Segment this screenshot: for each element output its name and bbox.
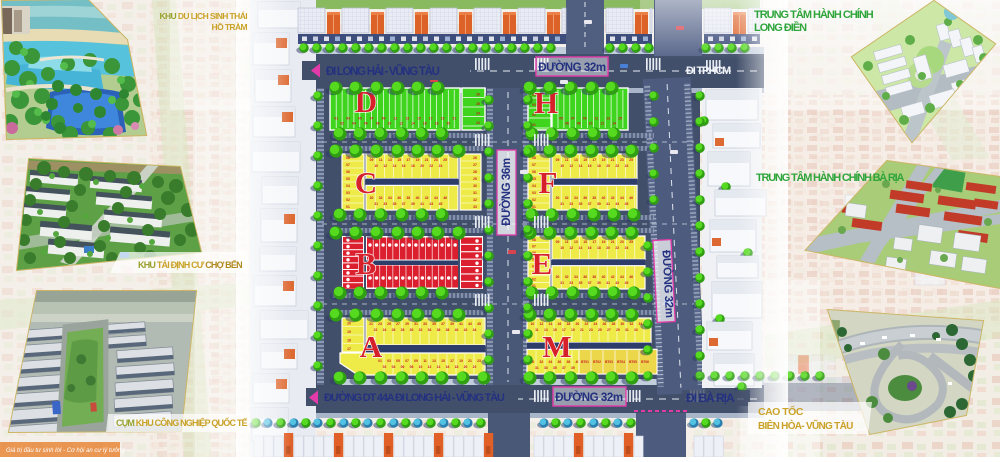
svg-text:15: 15	[583, 158, 587, 162]
svg-text:31: 31	[625, 328, 629, 332]
svg-text:21: 21	[468, 359, 472, 363]
svg-text:29: 29	[405, 322, 409, 326]
svg-text:21: 21	[611, 158, 615, 162]
svg-text:02: 02	[383, 365, 387, 369]
svg-text:37: 37	[588, 281, 592, 285]
svg-text:HỒ TRÀM: HỒ TRÀM	[212, 21, 248, 32]
svg-text:32: 32	[379, 196, 383, 200]
svg-text:16: 16	[402, 164, 406, 168]
svg-text:KHU DU LỊCH SINH THÁI: KHU DU LỊCH SINH THÁI	[159, 11, 247, 21]
svg-text:34: 34	[574, 275, 578, 279]
svg-text:16: 16	[558, 322, 562, 326]
svg-text:32: 32	[419, 328, 423, 332]
svg-text:Giá trị đầu tư sinh lời - Cơ h: Giá trị đầu tư sinh lời - Cơ hội an cư l…	[6, 447, 125, 454]
svg-text:06: 06	[565, 122, 569, 126]
svg-text:33: 33	[569, 281, 573, 285]
svg-text:35: 35	[579, 281, 583, 285]
svg-text:BT05: BT05	[629, 360, 637, 364]
svg-text:43: 43	[615, 202, 619, 206]
svg-text:42: 42	[611, 275, 615, 279]
svg-text:BT01: BT01	[581, 360, 589, 364]
svg-text:38: 38	[592, 275, 596, 279]
svg-text:25: 25	[443, 158, 447, 162]
svg-text:37: 37	[402, 202, 406, 206]
svg-text:F: F	[539, 165, 558, 200]
svg-text:08: 08	[376, 122, 380, 126]
svg-text:BT04: BT04	[617, 360, 625, 364]
svg-text:18: 18	[435, 122, 439, 126]
svg-text:21: 21	[369, 322, 373, 326]
svg-text:42: 42	[464, 328, 468, 332]
svg-text:33: 33	[544, 366, 548, 370]
svg-text:40: 40	[416, 196, 420, 200]
svg-text:39: 39	[597, 202, 601, 206]
svg-text:14: 14	[549, 322, 553, 326]
svg-text:BT06: BT06	[641, 360, 649, 364]
svg-text:22: 22	[473, 365, 477, 369]
svg-text:28: 28	[473, 170, 477, 174]
svg-text:15: 15	[618, 117, 622, 121]
svg-text:17: 17	[429, 117, 433, 121]
svg-text:21: 21	[425, 158, 429, 162]
svg-text:18: 18	[455, 365, 459, 369]
svg-text:18: 18	[597, 246, 601, 250]
svg-text:38: 38	[446, 328, 450, 332]
svg-text:11: 11	[394, 117, 398, 121]
svg-text:06: 06	[401, 365, 405, 369]
svg-text:08: 08	[410, 365, 414, 369]
svg-text:34: 34	[388, 196, 392, 200]
svg-text:36: 36	[583, 196, 587, 200]
svg-text:09: 09	[382, 117, 386, 121]
svg-text:20: 20	[447, 122, 451, 126]
svg-text:17: 17	[406, 158, 410, 162]
svg-text:16: 16	[588, 164, 592, 168]
svg-text:14: 14	[411, 122, 415, 126]
svg-text:09: 09	[414, 359, 418, 363]
svg-text:23: 23	[620, 158, 624, 162]
svg-text:09: 09	[370, 158, 374, 162]
svg-text:06: 06	[364, 122, 368, 126]
svg-text:45: 45	[625, 281, 629, 285]
svg-text:31: 31	[560, 202, 564, 206]
svg-text:27: 27	[396, 322, 400, 326]
svg-text:19: 19	[459, 359, 463, 363]
svg-text:36: 36	[397, 196, 401, 200]
svg-text:29: 29	[616, 328, 620, 332]
svg-text:CỤM KHU CÔNG NGHIỆP QUỐC TẾ: CỤM KHU CÔNG NGHIỆP QUỐC TẾ	[116, 417, 248, 428]
svg-text:33: 33	[423, 322, 427, 326]
svg-text:TRUNG TÂM HÀNH CHÍNH: TRUNG TÂM HÀNH CHÍNH	[754, 8, 874, 21]
svg-text:11: 11	[565, 240, 569, 244]
svg-text:41: 41	[459, 322, 463, 326]
svg-text:23: 23	[434, 158, 438, 162]
svg-text:19: 19	[441, 117, 445, 121]
svg-text:16: 16	[446, 365, 450, 369]
svg-text:25: 25	[629, 158, 633, 162]
svg-text:12: 12	[600, 122, 604, 126]
svg-text:32: 32	[565, 275, 569, 279]
svg-text:27: 27	[607, 328, 611, 332]
svg-text:BIÊN HÒA- VŨNG TÀU: BIÊN HÒA- VŨNG TÀU	[758, 419, 853, 432]
svg-text:31: 31	[473, 191, 477, 195]
svg-text:24: 24	[594, 322, 598, 326]
svg-text:33: 33	[383, 202, 387, 206]
svg-text:09: 09	[556, 158, 560, 162]
svg-text:38: 38	[406, 196, 410, 200]
svg-text:29: 29	[473, 177, 477, 181]
svg-text:06: 06	[346, 170, 350, 174]
svg-text:07: 07	[532, 163, 536, 167]
svg-text:23: 23	[589, 328, 593, 332]
svg-text:05: 05	[346, 177, 350, 181]
svg-text:22: 22	[615, 246, 619, 250]
svg-text:22: 22	[429, 164, 433, 168]
svg-text:33: 33	[569, 202, 573, 206]
svg-text:28: 28	[401, 328, 405, 332]
svg-text:15: 15	[417, 117, 421, 121]
svg-text:27: 27	[473, 163, 477, 167]
svg-text:04: 04	[392, 365, 396, 369]
svg-text:25: 25	[387, 322, 391, 326]
svg-text:08: 08	[577, 122, 581, 126]
svg-text:BT02: BT02	[593, 360, 601, 364]
svg-text:ĐI LONG HẢI - VŨNG TÀU: ĐI LONG HẢI - VŨNG TÀU	[326, 65, 440, 78]
svg-text:40: 40	[602, 196, 606, 200]
svg-text:22: 22	[585, 322, 589, 326]
svg-text:32: 32	[565, 196, 569, 200]
svg-text:19: 19	[416, 158, 420, 162]
svg-text:19: 19	[602, 158, 606, 162]
svg-text:BT03: BT03	[605, 360, 613, 364]
svg-text:34: 34	[428, 328, 432, 332]
svg-text:41: 41	[606, 281, 610, 285]
svg-text:11: 11	[379, 158, 383, 162]
svg-text:31: 31	[535, 366, 539, 370]
svg-text:35: 35	[432, 322, 436, 326]
svg-text:10: 10	[560, 164, 564, 168]
svg-text:07: 07	[405, 359, 409, 363]
svg-text:13: 13	[405, 117, 409, 121]
svg-text:01: 01	[532, 205, 536, 209]
svg-text:25: 25	[629, 240, 633, 244]
svg-text:12: 12	[540, 322, 544, 326]
svg-text:14: 14	[579, 164, 583, 168]
svg-text:43: 43	[615, 281, 619, 285]
svg-text:07: 07	[571, 117, 575, 121]
svg-text:12: 12	[428, 365, 432, 369]
svg-text:35: 35	[579, 202, 583, 206]
svg-text:44: 44	[473, 328, 477, 332]
svg-text:ĐƯỜNG 36m: ĐƯỜNG 36m	[500, 158, 513, 226]
svg-text:20: 20	[420, 164, 424, 168]
svg-text:02: 02	[346, 198, 350, 202]
svg-text:39: 39	[450, 322, 454, 326]
svg-text:KHU TÁI ĐỊNH CƯ CHỢ BẾN: KHU TÁI ĐỊNH CƯ CHỢ BẾN	[138, 260, 242, 270]
svg-text:03: 03	[532, 191, 536, 195]
svg-text:26: 26	[392, 328, 396, 332]
svg-text:41: 41	[420, 202, 424, 206]
svg-text:43: 43	[468, 322, 472, 326]
svg-text:ĐƯỜNG DT 44A ĐI LONG HẢI - VŨ: ĐƯỜNG DT 44A ĐI LONG HẢI - VŨNG TÀU	[324, 391, 505, 404]
svg-text:42: 42	[611, 196, 615, 200]
svg-text:21: 21	[452, 117, 456, 121]
svg-text:45: 45	[439, 202, 443, 206]
svg-text:03: 03	[387, 359, 391, 363]
svg-text:42: 42	[425, 196, 429, 200]
svg-text:ĐƯỜNG 32m: ĐƯỜNG 32m	[555, 391, 623, 404]
svg-text:33: 33	[473, 205, 477, 209]
svg-text:32: 32	[473, 198, 477, 202]
svg-text:30: 30	[621, 322, 625, 326]
svg-text:21: 21	[580, 328, 584, 332]
svg-text:07: 07	[346, 163, 350, 167]
svg-text:14: 14	[612, 122, 616, 126]
svg-text:34: 34	[574, 196, 578, 200]
svg-text:18: 18	[567, 322, 571, 326]
svg-text:10: 10	[388, 122, 392, 126]
svg-text:16: 16	[588, 246, 592, 250]
svg-text:44: 44	[434, 196, 438, 200]
svg-text:14: 14	[579, 246, 583, 250]
svg-text:46: 46	[443, 196, 447, 200]
svg-text:18: 18	[411, 164, 415, 168]
svg-text:25: 25	[598, 328, 602, 332]
svg-text:18: 18	[597, 164, 601, 168]
svg-text:36: 36	[437, 328, 441, 332]
svg-text:ĐI TP.HCM: ĐI TP.HCM	[686, 65, 731, 77]
svg-text:32: 32	[630, 322, 634, 326]
svg-text:06: 06	[532, 170, 536, 174]
svg-text:26: 26	[476, 93, 480, 97]
svg-text:04: 04	[346, 184, 350, 188]
svg-text:24: 24	[439, 164, 443, 168]
svg-text:13: 13	[432, 359, 436, 363]
svg-text:37: 37	[588, 202, 592, 206]
svg-text:28: 28	[612, 322, 616, 326]
svg-text:13: 13	[574, 158, 578, 162]
svg-text:20: 20	[576, 322, 580, 326]
svg-text:24: 24	[383, 328, 387, 332]
svg-text:19: 19	[602, 240, 606, 244]
svg-text:26: 26	[473, 156, 477, 160]
svg-text:36: 36	[583, 275, 587, 279]
svg-text:04: 04	[352, 122, 356, 126]
svg-text:30: 30	[473, 184, 477, 188]
svg-text:26: 26	[603, 322, 607, 326]
svg-text:22: 22	[615, 164, 619, 168]
svg-text:10: 10	[419, 365, 423, 369]
svg-text:35: 35	[393, 202, 397, 206]
svg-text:02: 02	[532, 198, 536, 202]
svg-text:31: 31	[374, 202, 378, 206]
svg-text:05: 05	[396, 359, 400, 363]
svg-text:02: 02	[340, 122, 344, 126]
svg-text:44: 44	[620, 196, 624, 200]
svg-text:11: 11	[595, 117, 599, 121]
svg-text:15: 15	[397, 158, 401, 162]
svg-text:12: 12	[399, 122, 403, 126]
svg-text:20: 20	[464, 365, 468, 369]
svg-text:23: 23	[620, 240, 624, 244]
svg-text:03: 03	[346, 117, 350, 121]
svg-text:20: 20	[606, 164, 610, 168]
svg-text:19: 19	[347, 330, 351, 334]
svg-text:09: 09	[556, 240, 560, 244]
svg-text:10: 10	[589, 122, 593, 126]
svg-text:12: 12	[383, 164, 387, 168]
svg-text:35: 35	[553, 366, 557, 370]
svg-text:M: M	[542, 329, 571, 364]
svg-text:45: 45	[477, 322, 481, 326]
svg-text:33: 33	[634, 328, 638, 332]
svg-text:03: 03	[346, 191, 350, 195]
svg-text:17: 17	[592, 240, 596, 244]
svg-text:46: 46	[629, 196, 633, 200]
svg-text:01: 01	[346, 205, 350, 209]
svg-text:12: 12	[569, 246, 573, 250]
svg-text:30: 30	[410, 328, 414, 332]
svg-text:24: 24	[625, 246, 629, 250]
svg-text:15: 15	[583, 240, 587, 244]
svg-text:20: 20	[606, 246, 610, 250]
svg-text:37: 37	[562, 366, 566, 370]
svg-text:04: 04	[532, 184, 536, 188]
svg-text:E: E	[532, 246, 553, 281]
svg-text:16: 16	[423, 122, 427, 126]
svg-text:ĐƯỜNG 32m: ĐƯỜNG 32m	[538, 61, 606, 74]
svg-text:30: 30	[556, 275, 560, 279]
svg-text:31: 31	[414, 322, 418, 326]
svg-text:39: 39	[597, 281, 601, 285]
svg-text:01: 01	[334, 117, 338, 121]
svg-text:17: 17	[592, 158, 596, 162]
svg-text:11: 11	[535, 328, 539, 332]
svg-text:44: 44	[620, 275, 624, 279]
svg-text:21: 21	[611, 240, 615, 244]
svg-text:31: 31	[560, 281, 564, 285]
svg-text:15: 15	[441, 359, 445, 363]
svg-text:12: 12	[569, 164, 573, 168]
svg-text:20: 20	[347, 322, 351, 326]
svg-text:23: 23	[378, 322, 382, 326]
svg-text:39: 39	[411, 202, 415, 206]
svg-text:17: 17	[347, 347, 351, 351]
svg-text:CAO TỐC: CAO TỐC	[758, 404, 804, 418]
svg-text:14: 14	[437, 365, 441, 369]
svg-text:24: 24	[476, 112, 480, 116]
svg-text:11: 11	[565, 158, 569, 162]
svg-text:13: 13	[388, 158, 392, 162]
svg-text:23: 23	[476, 121, 480, 125]
svg-text:41: 41	[606, 202, 610, 206]
svg-text:23: 23	[477, 359, 481, 363]
svg-text:09: 09	[583, 117, 587, 121]
svg-text:38: 38	[592, 196, 596, 200]
svg-text:25: 25	[476, 102, 480, 106]
svg-text:39: 39	[571, 366, 575, 370]
svg-text:10: 10	[560, 246, 564, 250]
svg-text:37: 37	[441, 322, 445, 326]
svg-text:13: 13	[574, 240, 578, 244]
svg-text:05: 05	[559, 117, 563, 121]
svg-text:A: A	[360, 329, 383, 364]
svg-text:17: 17	[450, 359, 454, 363]
svg-text:45: 45	[625, 202, 629, 206]
svg-text:18: 18	[347, 339, 351, 343]
svg-text:14: 14	[393, 164, 397, 168]
svg-text:ĐI BÀ RỊA: ĐI BÀ RỊA	[686, 390, 735, 405]
svg-text:11: 11	[423, 359, 427, 363]
svg-text:40: 40	[455, 328, 459, 332]
svg-text:40: 40	[602, 275, 606, 279]
svg-text:24: 24	[625, 164, 629, 168]
svg-text:46: 46	[629, 275, 633, 279]
svg-text:13: 13	[606, 117, 610, 121]
svg-text:43: 43	[429, 202, 433, 206]
svg-text:B: B	[356, 246, 377, 281]
svg-text:10: 10	[531, 322, 535, 326]
svg-text:TRUNG TÂM HÀNH CHÍNH BÀ RỊA: TRUNG TÂM HÀNH CHÍNH BÀ RỊA	[756, 171, 905, 184]
svg-text:C: C	[355, 165, 377, 200]
svg-text:LONG ĐIỀN: LONG ĐIỀN	[754, 21, 807, 34]
